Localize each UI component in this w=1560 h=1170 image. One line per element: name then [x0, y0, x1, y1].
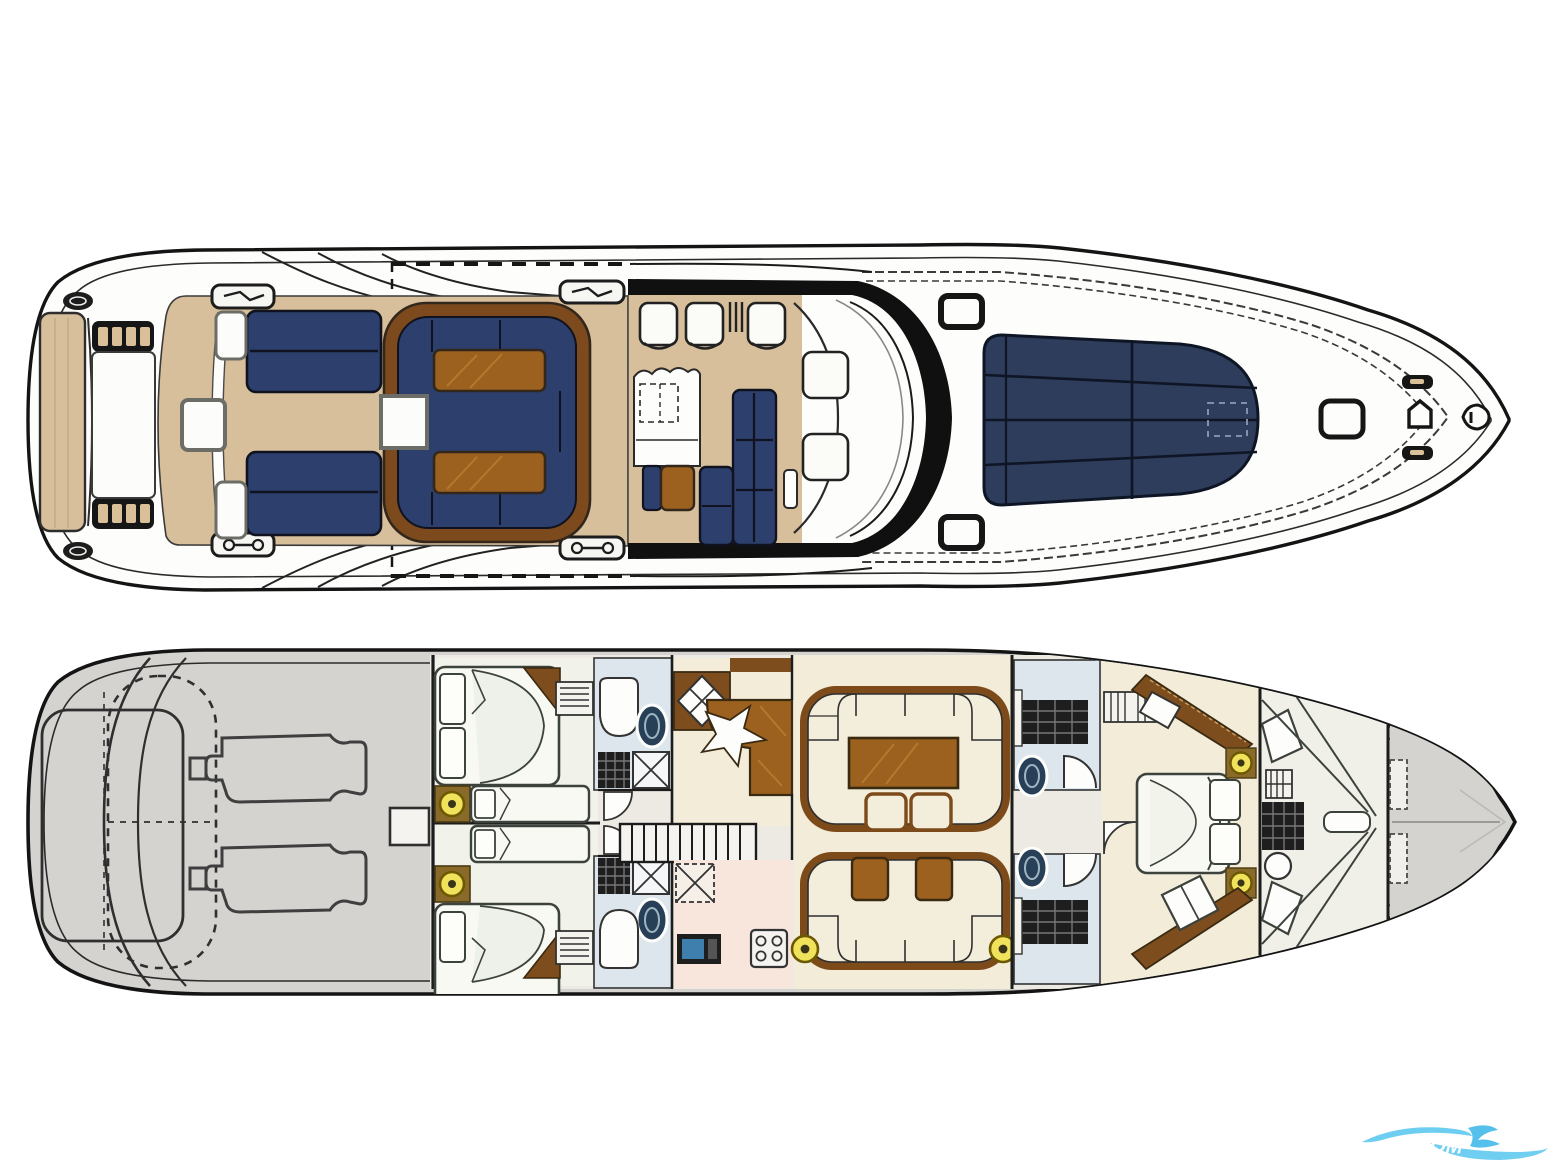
svg-text:.COM: .COM — [1410, 1133, 1465, 1159]
